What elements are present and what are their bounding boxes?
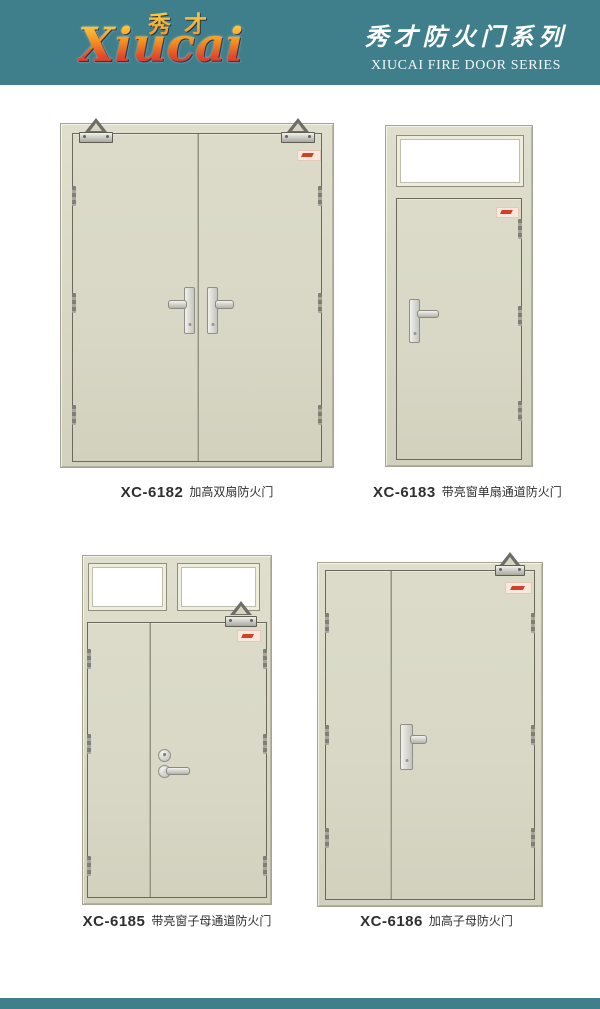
product-caption: XC-6182加高双扇防火门	[60, 484, 334, 502]
product-code: XC-6183	[373, 484, 436, 501]
hinge-icon	[318, 293, 322, 313]
door-seam	[390, 571, 392, 899]
door-handle-plate	[409, 299, 420, 343]
door-figure-xc-6186	[317, 550, 543, 907]
door-leaves	[87, 622, 267, 898]
closer-body	[225, 616, 257, 627]
hinge-icon	[325, 828, 329, 848]
hinge-icon	[72, 186, 76, 206]
product-caption: XC-6186加高子母防火门	[330, 913, 543, 931]
door-leaf	[396, 198, 522, 460]
hinge-icon	[518, 219, 522, 239]
hinge-icon	[72, 405, 76, 425]
header-band: 秀才 Xiucai 秀才防火门系列 XIUCAI FIRE DOOR SERIE…	[0, 0, 600, 85]
fire-rating-label	[505, 582, 532, 594]
logo-latin-text: Xiucai	[78, 18, 243, 73]
product-name: 带亮窗子母通道防火门	[145, 914, 271, 928]
hinge-icon	[318, 405, 322, 425]
door-figure-xc-6183	[385, 125, 533, 467]
series-title: 秀才防火门系列 XIUCAI FIRE DOOR SERIES	[358, 17, 574, 74]
hinge-icon	[72, 293, 76, 313]
window-glass	[400, 139, 520, 183]
closer-arm-inner	[90, 123, 102, 131]
door-closer-icon	[225, 601, 257, 627]
hinge-icon	[531, 828, 535, 848]
lock-rosette	[158, 749, 171, 762]
hinge-icon	[318, 186, 322, 206]
fire-rating-label	[496, 207, 519, 218]
transom-window	[396, 135, 524, 187]
door-leaves	[72, 133, 322, 462]
product-code: XC-6185	[83, 913, 146, 930]
door-handle-lever	[417, 310, 439, 318]
hinge-icon	[263, 734, 267, 754]
door-handle-plate	[184, 287, 195, 334]
hinge-icon	[263, 649, 267, 669]
closer-body	[79, 132, 113, 143]
door-figure-xc-6182	[60, 112, 334, 468]
series-title-english: XIUCAI FIRE DOOR SERIES	[358, 58, 574, 74]
hinge-icon	[531, 725, 535, 745]
hinge-icon	[518, 401, 522, 421]
catalog-page: 秀才 Xiucai 秀才防火门系列 XIUCAI FIRE DOOR SERIE…	[0, 0, 600, 1009]
door-handle-lever	[168, 300, 187, 309]
hinge-icon	[87, 649, 91, 669]
closer-arm-inner	[235, 606, 247, 614]
product-code: XC-6186	[360, 913, 423, 930]
hinge-icon	[87, 734, 91, 754]
brand-logo: 秀才 Xiucai	[78, 2, 263, 82]
product-caption: XC-6183带亮窗单扇通道防火门	[373, 484, 533, 502]
door-handle-plate	[207, 287, 218, 334]
closer-body	[281, 132, 315, 143]
door-handle-lever	[166, 767, 190, 775]
window-glass	[92, 567, 163, 607]
transom-window	[88, 563, 167, 611]
fire-rating-label	[297, 150, 321, 161]
door-handle-lever	[215, 300, 234, 309]
fire-rating-label	[237, 630, 261, 642]
product-name: 带亮窗单扇通道防火门	[436, 485, 562, 499]
product-name: 加高双扇防火门	[183, 485, 273, 499]
series-title-chinese: 秀才防火门系列	[358, 17, 574, 52]
door-seam	[197, 134, 199, 461]
hinge-icon	[87, 856, 91, 876]
door-handle-plate	[400, 724, 413, 770]
door-seam	[149, 623, 151, 897]
hinge-icon	[531, 613, 535, 633]
door-closer-icon	[79, 118, 113, 143]
product-caption: XC-6185带亮窗子母通道防火门	[80, 913, 274, 931]
closer-arm-inner	[504, 557, 516, 565]
hinge-icon	[263, 856, 267, 876]
closer-arm-inner	[292, 123, 304, 131]
footer-band	[0, 998, 600, 1009]
door-closer-icon	[495, 552, 525, 576]
product-name: 加高子母防火门	[423, 914, 513, 928]
door-leaves	[325, 570, 535, 900]
door-figure-xc-6185	[82, 550, 272, 905]
hinge-icon	[518, 306, 522, 326]
door-closer-icon	[281, 118, 315, 143]
hinge-icon	[325, 725, 329, 745]
door-handle-lever	[410, 735, 427, 744]
closer-body	[495, 565, 525, 576]
product-code: XC-6182	[121, 484, 184, 501]
hinge-icon	[325, 613, 329, 633]
